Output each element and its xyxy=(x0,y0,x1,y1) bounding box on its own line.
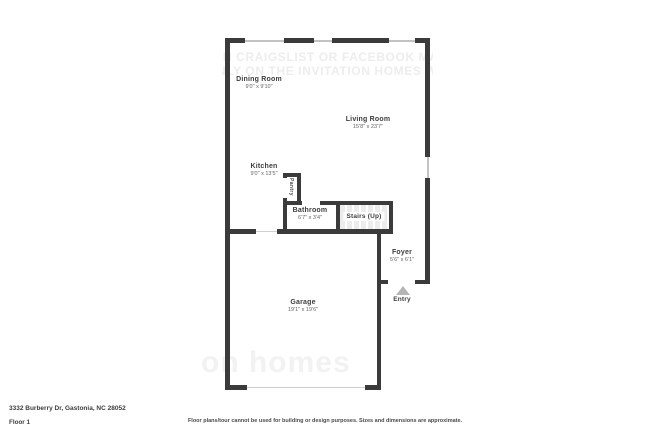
wall xyxy=(225,385,247,390)
window xyxy=(389,40,415,42)
room-name: Entry xyxy=(393,296,411,303)
room-label-kitchen: Kitchen 9'0" x 13'5" xyxy=(250,163,277,177)
window xyxy=(427,157,429,178)
wall xyxy=(283,201,302,205)
room-name: Stairs (Up) xyxy=(343,212,384,221)
wall xyxy=(336,201,340,229)
room-label-stairs: Stairs (Up) xyxy=(343,212,384,221)
wall xyxy=(225,38,230,390)
garage-door xyxy=(247,387,365,388)
wall xyxy=(283,173,287,178)
floor-label: Floor 1 xyxy=(9,419,30,426)
wall xyxy=(284,38,314,43)
room-dimensions: 9'0" x 9'10" xyxy=(236,84,282,90)
wall xyxy=(377,280,388,284)
wall xyxy=(389,201,393,229)
room-dimensions: 6'7" x 3'4" xyxy=(293,215,328,221)
room-dimensions: 9'0" x 13'5" xyxy=(250,171,277,177)
room-label-pantry: Pantry xyxy=(288,178,294,196)
room-label-living-room: Living Room 15'8" x 23'7" xyxy=(346,116,391,130)
watermark-line-1: ON CRAIGSLIST OR FACEBOOK MARK xyxy=(222,50,433,64)
room-dimensions: 15'8" x 23'7" xyxy=(346,124,391,130)
disclaimer-text: Floor plans/tour cannot be used for buil… xyxy=(188,418,462,424)
property-address: 3332 Burberry Dr, Gastonia, NC 28052 xyxy=(9,405,126,412)
wall xyxy=(320,201,393,205)
room-name: Dining Room xyxy=(236,76,282,83)
door-opening xyxy=(256,231,277,232)
room-name: Kitchen xyxy=(250,163,277,170)
wall xyxy=(332,38,389,43)
window xyxy=(245,40,284,42)
window xyxy=(314,40,332,42)
wall xyxy=(425,178,430,284)
wall xyxy=(377,234,381,385)
entry-arrow-icon xyxy=(396,286,410,295)
wall xyxy=(277,229,393,234)
wall xyxy=(415,280,430,284)
room-label-dining-room: Dining Room 9'0" x 9'10" xyxy=(236,76,282,90)
room-dimensions: 19'1" x 19'6" xyxy=(288,307,318,313)
wall xyxy=(225,229,256,234)
room-name: Foyer xyxy=(390,249,414,256)
room-dimensions: 5'6" x 6'1" xyxy=(390,257,414,263)
room-name: Bathroom xyxy=(293,207,328,214)
room-name: Garage xyxy=(288,299,318,306)
wall xyxy=(365,385,381,390)
floorplan-canvas: ON CRAIGSLIST OR FACEBOOK MARK NLY ON TH… xyxy=(0,0,650,433)
room-label-garage: Garage 19'1" x 19'6" xyxy=(288,299,318,313)
room-label-entry: Entry xyxy=(393,296,411,303)
homes-logo-watermark: on homes xyxy=(201,346,351,380)
room-name: Living Room xyxy=(346,116,391,123)
wall xyxy=(425,38,430,157)
room-label-bathroom: Bathroom 6'7" x 3'4" xyxy=(293,207,328,221)
room-label-foyer: Foyer 5'6" x 6'1" xyxy=(390,249,414,263)
